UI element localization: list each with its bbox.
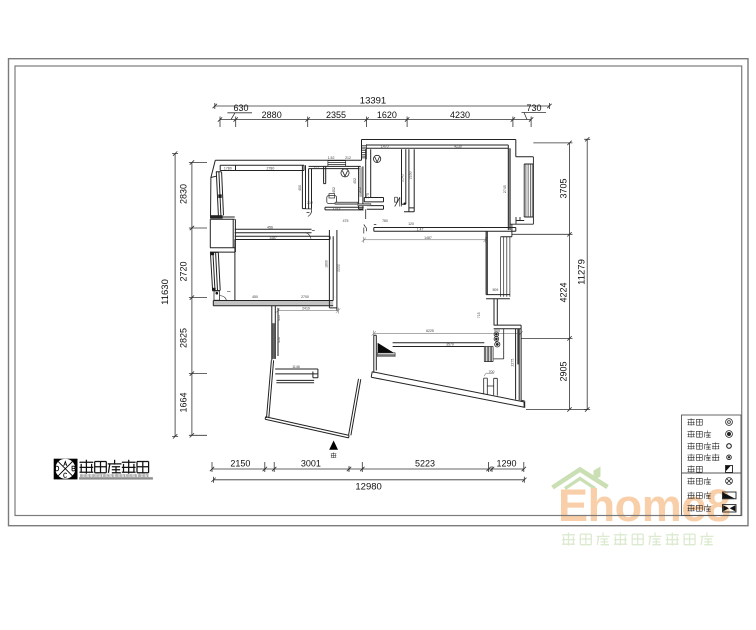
svg-text:1487: 1487 [424,236,432,240]
svg-text:1290: 1290 [496,458,516,468]
svg-text:2419: 2419 [302,307,310,311]
svg-text:2720: 2720 [179,261,189,281]
svg-text:2830: 2830 [179,184,189,204]
svg-text:456: 456 [267,226,273,230]
svg-text:120: 120 [408,222,414,226]
svg-text:2780: 2780 [267,166,275,170]
svg-text:2222: 2222 [337,264,341,272]
svg-text:1.52: 1.52 [328,156,335,160]
svg-text:475: 475 [343,219,349,223]
svg-text:712: 712 [313,166,319,170]
svg-text:2150: 2150 [230,458,250,468]
svg-text:730: 730 [526,103,541,113]
svg-text:450: 450 [277,337,281,343]
svg-text:452: 452 [332,187,336,193]
svg-text:400: 400 [298,185,302,191]
svg-text:3001: 3001 [301,458,321,468]
svg-text:2145: 2145 [401,174,405,182]
svg-text:3705: 3705 [559,178,569,198]
svg-text:11279: 11279 [577,259,588,285]
svg-text:2825: 2825 [179,328,189,348]
svg-text:12980: 12980 [355,482,381,493]
svg-text:2275: 2275 [510,359,514,367]
svg-text:13391: 13391 [360,96,386,107]
svg-text:500: 500 [494,329,500,333]
svg-text:1.47: 1.47 [417,227,424,231]
svg-text:455: 455 [277,315,281,321]
svg-text:1212: 1212 [333,208,341,212]
svg-text:1470: 1470 [381,145,389,149]
svg-text:11630: 11630 [160,279,171,305]
svg-text:509: 509 [492,288,498,292]
svg-text:212: 212 [358,187,362,193]
svg-text:780: 780 [382,219,388,223]
svg-text:212: 212 [307,201,313,205]
svg-text:1664: 1664 [179,392,189,412]
svg-text:1487: 1487 [269,236,277,240]
svg-text:715: 715 [477,312,481,318]
svg-text:4224: 4224 [559,282,569,302]
svg-text:4230: 4230 [454,145,462,149]
svg-text:2880: 2880 [262,110,282,120]
svg-text:175: 175 [366,193,370,199]
svg-text:2905: 2905 [559,361,569,381]
svg-text:212: 212 [345,156,351,160]
svg-text:1780: 1780 [224,166,232,170]
svg-text:630: 630 [233,103,248,113]
svg-text:2160: 2160 [409,171,413,179]
svg-text:700: 700 [489,370,495,374]
svg-text:2355: 2355 [326,110,346,120]
svg-text:2745: 2745 [503,185,507,193]
svg-text:1800: 1800 [325,260,329,268]
svg-text:450: 450 [252,295,258,299]
svg-text:3570: 3570 [446,343,454,347]
svg-text:5223: 5223 [415,458,435,468]
svg-text:4230: 4230 [450,110,470,120]
svg-text:2700: 2700 [301,295,309,299]
svg-text:452: 452 [353,178,357,184]
svg-text:6225: 6225 [426,329,434,333]
svg-text:1620: 1620 [377,110,397,120]
svg-text:1146: 1146 [292,365,300,369]
